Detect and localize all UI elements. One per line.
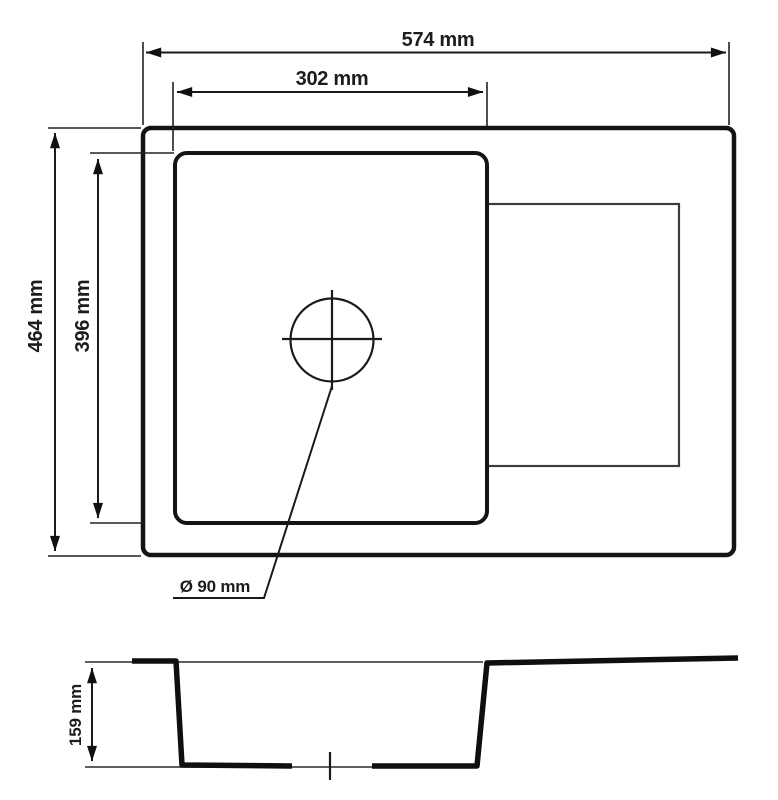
section-profile-right — [372, 658, 738, 766]
overall-depth-label: 464 mm — [25, 280, 47, 353]
sink-dimension-drawing: Ø 90 mm 574 mm 302 mm 464 mm 396 mm — [0, 0, 778, 800]
top-view: Ø 90 mm — [143, 128, 734, 598]
technical-drawing-svg: Ø 90 mm 574 mm 302 mm 464 mm 396 mm — [0, 0, 778, 800]
side-view: 159 mm — [66, 658, 738, 780]
bowl-width-label: 302 mm — [296, 68, 369, 90]
bowl-height-label: 159 mm — [66, 684, 85, 746]
drain-diameter-label: Ø 90 mm — [180, 577, 250, 596]
overall-width-label: 574 mm — [402, 29, 475, 51]
bowl-depth-label: 396 mm — [72, 280, 94, 353]
section-profile-left — [132, 661, 292, 766]
